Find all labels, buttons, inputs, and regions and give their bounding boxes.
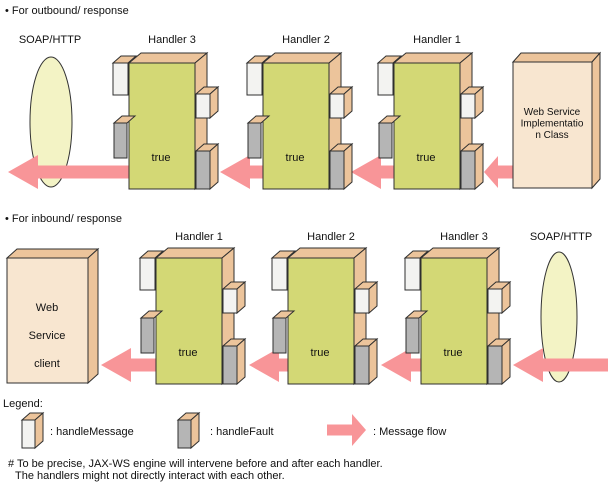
diagram-canvas: • For outbound/ response SOAP/HTTP Handl… bbox=[0, 0, 608, 492]
section-title: • For outbound/ response bbox=[5, 5, 129, 17]
endpoint-label-line: client bbox=[34, 358, 60, 370]
jaxws-handler-diagram: • For outbound/ response SOAP/HTTP Handl… bbox=[0, 0, 608, 492]
endpoint-label-line: Web Service bbox=[524, 107, 581, 118]
web-service-implementation-class-box: Web Service Implementatio n Class bbox=[513, 53, 600, 188]
handler-true-flag: true bbox=[179, 347, 198, 359]
section-title: • For inbound/ response bbox=[5, 213, 122, 225]
endpoint-side-face bbox=[88, 249, 98, 383]
legend-box-front bbox=[22, 420, 35, 448]
handler-true-flag: true bbox=[311, 347, 330, 359]
message-flow-arrow-icon bbox=[327, 414, 366, 446]
footnote-line: # To be precise, JAX-WS engine will inte… bbox=[8, 458, 383, 470]
endpoint-label-line: Service bbox=[29, 330, 66, 342]
handler-2-block bbox=[247, 53, 352, 189]
handler-label: Handler 2 bbox=[282, 34, 330, 46]
footnote-line: The handlers might not directly interact… bbox=[15, 470, 285, 482]
legend-title: Legend: bbox=[3, 398, 43, 410]
handler-true-flag: true bbox=[152, 152, 171, 164]
section-outbound-response: • For outbound/ response SOAP/HTTP Handl… bbox=[5, 5, 600, 189]
section-inbound-response: • For inbound/ response SOAP/HTTP Handle… bbox=[5, 213, 608, 384]
message-flow-arrow-icon bbox=[484, 156, 513, 188]
footnote: # To be precise, JAX-WS engine will inte… bbox=[8, 458, 383, 482]
handler-1-block bbox=[140, 248, 245, 384]
endpoint-label-line: n Class bbox=[535, 130, 568, 141]
legend-box-front bbox=[178, 420, 191, 448]
handler-label: Handler 1 bbox=[175, 231, 223, 243]
handle-fault-box-icon bbox=[178, 413, 199, 448]
soap-http-label: SOAP/HTTP bbox=[19, 34, 81, 46]
endpoint-top-face bbox=[7, 249, 98, 258]
handler-label: Handler 3 bbox=[440, 231, 488, 243]
handler-true-flag: true bbox=[286, 152, 305, 164]
handler-3-block bbox=[405, 248, 510, 384]
handler-true-flag: true bbox=[444, 347, 463, 359]
endpoint-side-face bbox=[592, 53, 600, 188]
endpoint-label-line: Web bbox=[36, 302, 58, 314]
soap-http-label: SOAP/HTTP bbox=[530, 231, 592, 243]
handler-1-block bbox=[378, 53, 483, 189]
endpoint-label-line: Implementatio bbox=[521, 119, 584, 130]
legend: Legend: : handleMessage : handleFault : … bbox=[3, 398, 446, 448]
handler-label: Handler 3 bbox=[148, 34, 196, 46]
legend-item-label: : Message flow bbox=[373, 426, 446, 438]
web-service-client-box: Web Service client bbox=[7, 249, 98, 383]
handler-true-flag: true bbox=[417, 152, 436, 164]
handler-label: Handler 1 bbox=[413, 34, 461, 46]
handler-2-block bbox=[272, 248, 377, 384]
legend-item-label: : handleMessage bbox=[50, 426, 134, 438]
handler-3-block bbox=[113, 53, 218, 189]
handle-message-box-icon bbox=[22, 413, 43, 448]
handler-label: Handler 2 bbox=[307, 231, 355, 243]
legend-item-label: : handleFault bbox=[210, 426, 274, 438]
endpoint-top-face bbox=[513, 53, 600, 62]
